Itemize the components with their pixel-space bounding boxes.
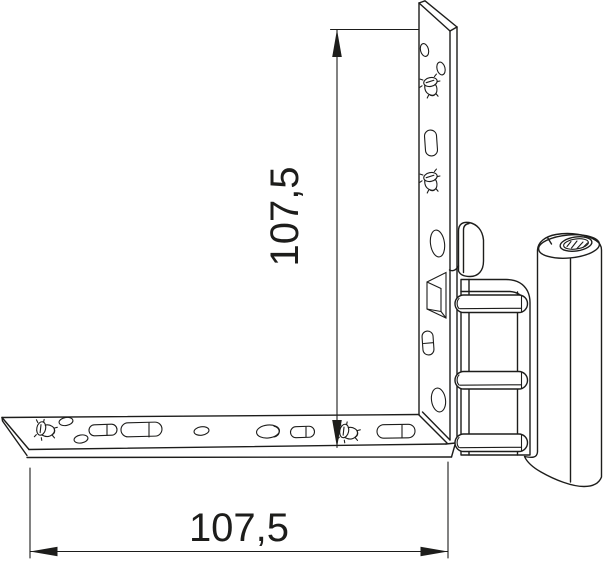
hole-oval	[73, 434, 88, 444]
hinge-tab	[450, 222, 484, 276]
vertical-dimension: 107,5	[263, 30, 419, 448]
technical-drawing: 107,5 107,5	[0, 0, 604, 562]
vertical-frame-plate	[419, 1, 457, 443]
horizontal-dimension-label: 107,5	[189, 506, 289, 550]
screw-icon	[418, 74, 443, 100]
arrowhead-right-icon	[421, 547, 449, 557]
hole-slot	[424, 130, 438, 157]
screw-icon	[418, 169, 443, 195]
hole-slot	[377, 424, 415, 438]
hinge-barrel	[525, 232, 602, 486]
screw-icon	[32, 418, 58, 443]
hole-oval	[193, 426, 209, 436]
hole-slot	[121, 422, 162, 437]
horizontal-frame-plate	[2, 415, 456, 458]
hole-oval	[419, 43, 430, 58]
hole-oval	[58, 416, 73, 426]
vertical-plate-holes	[418, 43, 447, 413]
hole-oval	[430, 387, 447, 413]
horizontal-plate-holes	[32, 416, 415, 445]
hole-slot	[290, 426, 314, 438]
arrowhead-up-icon	[332, 30, 342, 58]
hinge-rib	[455, 295, 528, 313]
hinge-rib	[455, 434, 528, 452]
hole-slot	[89, 424, 117, 436]
hole-oval	[429, 229, 447, 258]
hole-oval	[436, 61, 447, 76]
hinge-rib	[455, 372, 528, 390]
arrowhead-left-icon	[30, 547, 58, 557]
horizontal-dimension: 107,5	[30, 462, 448, 558]
vertical-dimension-label: 107,5	[263, 166, 307, 266]
